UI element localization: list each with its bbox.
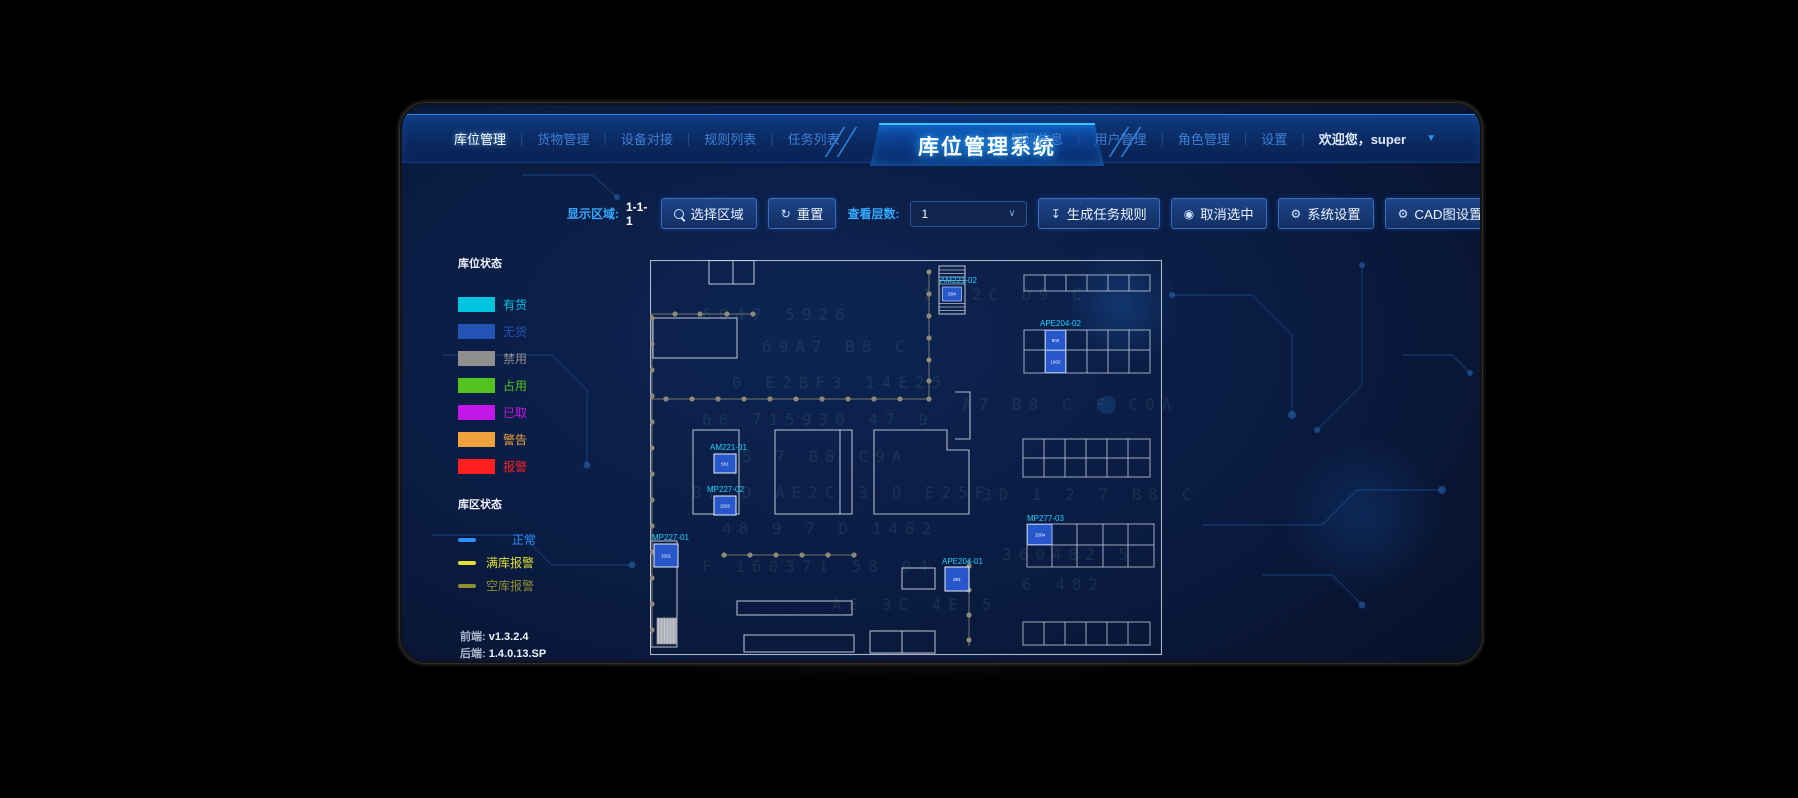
chevron-down-icon[interactable]: ▼ — [1426, 133, 1436, 144]
display-area-label: 显示区域: — [567, 205, 619, 222]
nav-separator: | — [1301, 131, 1304, 146]
nav-role-mgmt[interactable]: 角色管理 — [1178, 129, 1230, 148]
generate-task-rule-label: 生成任务规则 — [1067, 204, 1147, 223]
backend-version-label: 后端: — [460, 648, 486, 660]
version-info: 前端: v1.3.2.4 后端: 1.4.0.13.SP — [460, 629, 546, 663]
unit-label: AM221-01 — [710, 443, 747, 452]
frontend-version-value: v1.3.2.4 — [489, 631, 529, 643]
frontend-version-label: 前端: — [460, 631, 486, 643]
view-layer-label: 查看层数: — [847, 205, 899, 222]
legend-item: 禁用 — [458, 345, 588, 372]
zone-status-title: 库区状态 — [458, 496, 588, 512]
plan-toolbar: 显示区域: 1-1-1 选择区域 ↻ 重置 查看层数: 1 ∨ ↧ 生成任务规则… — [567, 200, 1482, 227]
tab-goods-mgmt[interactable]: 货物管理 — [537, 129, 589, 148]
download-icon: ↧ — [1051, 207, 1061, 221]
legend-label: 空库报警 — [486, 577, 534, 594]
right-nav: 扫码信息 | 用户管理 | 角色管理 | 设置 | 欢迎您，super ▼ — [1011, 115, 1436, 162]
backend-version: 后端: 1.4.0.13.SP — [460, 646, 546, 663]
legend-item: 报警 — [458, 453, 588, 480]
gear-icon: ⚙ — [1291, 207, 1302, 221]
slot-cell-number: 901 — [953, 577, 961, 582]
gear-icon: ⚙ — [1398, 207, 1409, 221]
search-icon — [674, 209, 684, 219]
top-navigation-bar: 库位管理 | 货物管理 | 设备对接 | 规则列表 | 任务列表 库位管理系统 … — [402, 114, 1480, 163]
system-settings-label: 系统设置 — [1307, 204, 1360, 223]
legend-label: 已取 — [503, 404, 527, 421]
nav-separator: | — [520, 131, 523, 146]
slot-cell-number: 1502 — [720, 504, 731, 509]
select-area-button[interactable]: 选择区域 — [661, 198, 756, 229]
nav-separator: | — [1160, 131, 1163, 146]
slot-cell-number: 902 — [1052, 338, 1060, 343]
nav-separator: | — [770, 131, 773, 146]
legend-label: 正常 — [512, 531, 536, 548]
refresh-icon: ↻ — [781, 207, 791, 221]
cancel-selected-label: 取消选中 — [1200, 204, 1253, 223]
slot-status-title: 库位状态 — [458, 255, 588, 271]
nav-separator: | — [687, 131, 690, 146]
unit-ape204-02[interactable]: 902 1002 APE204-02 — [1040, 319, 1081, 373]
color-swatch — [458, 378, 495, 393]
legend-panel: 库位状态 有货 无货 禁用 占用 已取 警告 报警 库区状态 — [458, 255, 588, 597]
nav-separator: | — [1077, 131, 1080, 146]
color-swatch — [458, 297, 495, 312]
color-swatch — [458, 405, 495, 420]
legend-item: 空库报警 — [458, 574, 588, 597]
reset-label: 重置 — [797, 204, 824, 223]
unit-label: MP227-01 — [652, 533, 689, 542]
unit-am221-01[interactable]: AM221-01 501 — [710, 443, 747, 473]
slot-cell-number: 501 — [721, 462, 729, 467]
line-swatch — [458, 538, 476, 542]
nav-scan-info[interactable]: 扫码信息 — [1011, 129, 1063, 148]
system-settings-button[interactable]: ⚙ 系统设置 — [1278, 198, 1374, 229]
user-menu[interactable]: 欢迎您，super — [1319, 129, 1406, 148]
legend-item: 警告 — [458, 426, 588, 453]
rack-am221-02[interactable]: 504 AM221-02 — [939, 266, 977, 314]
legend-label: 报警 — [503, 458, 527, 475]
unit-mp277-03[interactable]: MP277-03 1504 — [1027, 514, 1064, 545]
unit-label: APE204-02 — [1040, 319, 1081, 328]
select-area-label: 选择区域 — [690, 204, 743, 223]
legend-label: 警告 — [503, 431, 527, 448]
legend-label: 禁用 — [503, 350, 527, 367]
legend-label: 无货 — [503, 323, 527, 340]
tab-rule-list[interactable]: 规则列表 — [704, 129, 756, 148]
left-nav: 库位管理 | 货物管理 | 设备对接 | 规则列表 | 任务列表 — [454, 115, 840, 162]
unit-label: MP227-02 — [707, 485, 744, 494]
legend-item: 正常 — [458, 528, 588, 551]
frontend-version: 前端: v1.3.2.4 — [460, 629, 546, 646]
slot-cell-number: 1002 — [1050, 360, 1061, 365]
legend-item: 占用 — [458, 372, 588, 399]
layer-select-value: 1 — [921, 207, 928, 221]
cad-settings-label: CAD图设置 — [1414, 204, 1482, 223]
color-swatch — [458, 324, 495, 339]
nav-separator: | — [1244, 131, 1247, 146]
storage-grid — [1023, 275, 1154, 645]
unit-label: APE204-01 — [942, 557, 983, 566]
line-swatch — [458, 584, 476, 588]
layer-select[interactable]: 1 ∨ — [910, 201, 1026, 227]
tab-device-dock[interactable]: 设备对接 — [621, 129, 673, 148]
app-window: 6047 5926 69A7 B8 C 0 E2BF3 14E25 60 715… — [400, 103, 1482, 663]
slot-cell-number: 1504 — [1035, 533, 1046, 538]
cad-floor-plan[interactable]: 504 AM221-02 902 1002 APE204-02 AM221-01… — [650, 260, 1162, 658]
cad-settings-button[interactable]: ⚙ CAD图设置 — [1385, 198, 1482, 229]
display-area-value: 1-1-1 — [626, 200, 650, 228]
slot-cell-number: 504 — [948, 292, 956, 297]
unit-mp227-01[interactable]: MP227-01 1501 — [652, 533, 689, 644]
nav-separator: | — [603, 131, 606, 146]
cancel-selected-button[interactable]: ◉ 取消选中 — [1171, 198, 1267, 229]
slot-cell-number: 1501 — [661, 554, 672, 559]
legend-item: 有货 — [458, 291, 588, 318]
legend-label: 有货 — [503, 296, 527, 313]
reset-button[interactable]: ↻ 重置 — [768, 198, 837, 229]
unit-label: MP277-03 — [1027, 514, 1064, 523]
conveyor-path — [650, 269, 972, 647]
legend-item: 满库报警 — [458, 551, 588, 574]
legend-item: 已取 — [458, 399, 588, 426]
legend-label: 占用 — [503, 377, 527, 394]
chevron-down-icon: ∨ — [1008, 208, 1015, 219]
backend-version-value: 1.4.0.13.SP — [489, 648, 547, 660]
legend-label: 满库报警 — [486, 554, 534, 571]
tab-location-mgmt[interactable]: 库位管理 — [454, 129, 506, 148]
color-swatch — [458, 432, 495, 447]
line-swatch — [458, 561, 476, 565]
color-swatch — [458, 459, 495, 474]
nav-user-mgmt[interactable]: 用户管理 — [1094, 129, 1146, 148]
target-icon: ◉ — [1184, 207, 1194, 221]
unit-label: AM221-02 — [940, 276, 977, 285]
generate-task-rule-button[interactable]: ↧ 生成任务规则 — [1038, 198, 1160, 229]
legend-item: 无货 — [458, 318, 588, 345]
unit-ape204-01[interactable]: APE204-01 901 — [942, 557, 983, 591]
color-swatch — [458, 351, 495, 366]
nav-settings[interactable]: 设置 — [1261, 129, 1287, 148]
